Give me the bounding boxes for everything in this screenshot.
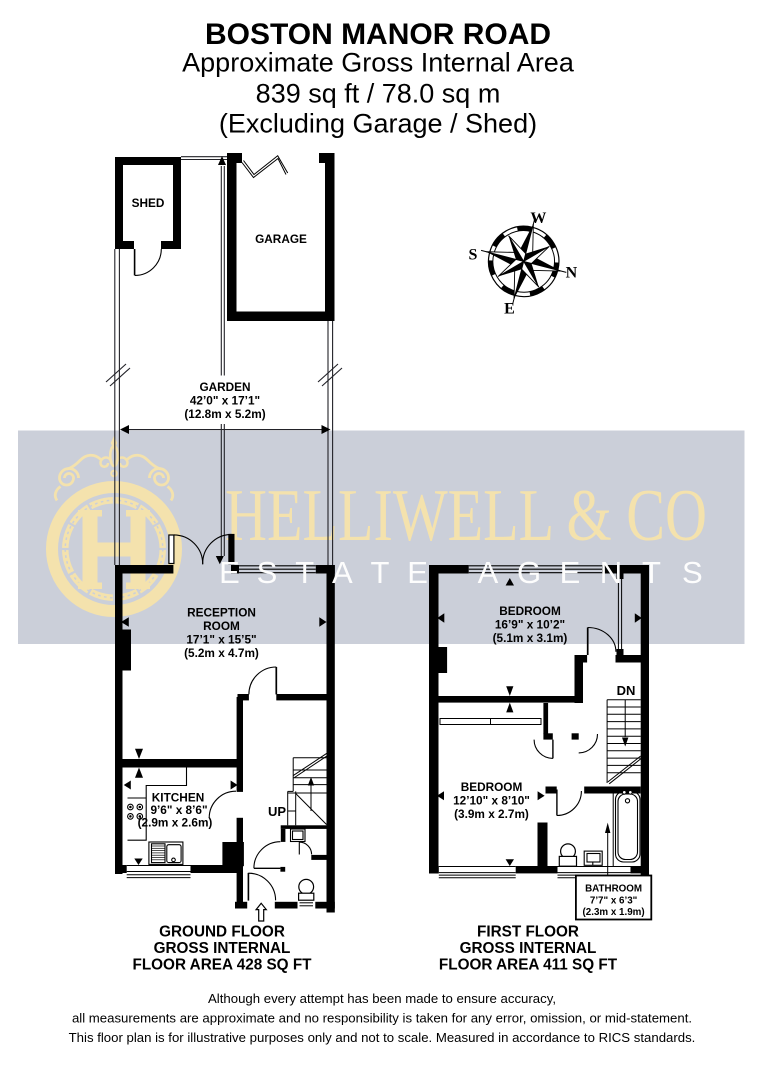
svg-text:N: N bbox=[566, 265, 578, 282]
svg-text:W: W bbox=[530, 210, 546, 227]
svg-text:GROSS INTERNAL: GROSS INTERNAL bbox=[460, 940, 597, 957]
svg-text:BOSTON MANOR ROAD: BOSTON MANOR ROAD bbox=[205, 18, 551, 51]
svg-text:ROOM: ROOM bbox=[203, 619, 240, 633]
svg-text:G: G bbox=[517, 555, 541, 590]
svg-text:(12.8m x 5.2m): (12.8m x 5.2m) bbox=[184, 407, 265, 421]
svg-text:FIRST FLOOR: FIRST FLOOR bbox=[477, 924, 579, 941]
svg-text:16’9" x 10’2": 16’9" x 10’2" bbox=[495, 618, 565, 632]
svg-text:S: S bbox=[682, 555, 703, 590]
svg-text:(5.2m x 4.7m): (5.2m x 4.7m) bbox=[184, 646, 259, 660]
svg-text:E: E bbox=[504, 301, 515, 318]
svg-text:BEDROOM: BEDROOM bbox=[499, 604, 561, 618]
svg-text:GROUND FLOOR: GROUND FLOOR bbox=[159, 924, 285, 941]
svg-text:FLOOR AREA 428 SQ FT: FLOOR AREA 428 SQ FT bbox=[132, 957, 312, 974]
svg-text:GARAGE: GARAGE bbox=[255, 232, 307, 246]
svg-text:7’7" x 6’3": 7’7" x 6’3" bbox=[590, 895, 637, 906]
svg-text:FLOOR AREA 411 SQ FT: FLOOR AREA 411 SQ FT bbox=[439, 957, 618, 974]
svg-text:E: E bbox=[219, 555, 240, 590]
svg-text:E: E bbox=[560, 555, 581, 590]
svg-text:S: S bbox=[469, 246, 478, 263]
svg-text:RECEPTION: RECEPTION bbox=[187, 606, 256, 620]
svg-text:42’0" x 17’1": 42’0" x 17’1" bbox=[190, 394, 260, 408]
svg-text:UP: UP bbox=[268, 804, 286, 819]
svg-text:839 sq ft / 78.0 sq m: 839 sq ft / 78.0 sq m bbox=[256, 79, 501, 109]
svg-text:(2.3m x 1.9m): (2.3m x 1.9m) bbox=[583, 907, 645, 918]
svg-text:Although every attempt has bee: Although every attempt has been made to … bbox=[208, 991, 556, 1006]
svg-text:N: N bbox=[600, 555, 622, 590]
svg-text:BEDROOM: BEDROOM bbox=[461, 780, 523, 794]
svg-text:T: T bbox=[642, 555, 661, 590]
svg-text:HELLIWELL & CO: HELLIWELL & CO bbox=[225, 475, 707, 557]
svg-text:DN: DN bbox=[617, 683, 636, 698]
svg-text:T: T bbox=[295, 555, 314, 590]
svg-text:(5.1m x 3.1m): (5.1m x 3.1m) bbox=[493, 631, 568, 645]
svg-text:12’10" x 8’10": 12’10" x 8’10" bbox=[453, 794, 530, 808]
svg-text:(Excluding Garage / Shed): (Excluding Garage / Shed) bbox=[219, 109, 537, 139]
svg-text:Approximate Gross Internal Are: Approximate Gross Internal Area bbox=[182, 48, 575, 78]
svg-text:SHED: SHED bbox=[132, 196, 165, 210]
svg-text:GROSS INTERNAL: GROSS INTERNAL bbox=[154, 940, 291, 957]
svg-text:all measurements are approxima: all measurements are approximate and no … bbox=[72, 1011, 692, 1026]
svg-text:17’1" x 15’5": 17’1" x 15’5" bbox=[186, 633, 256, 647]
svg-text:T: T bbox=[371, 555, 390, 590]
svg-text:BATHROOM: BATHROOM bbox=[585, 884, 642, 895]
svg-text:(3.9m x 2.7m): (3.9m x 2.7m) bbox=[454, 807, 529, 821]
svg-text:This floor plan is for illustr: This floor plan is for illustrative purp… bbox=[69, 1030, 696, 1045]
svg-text:E: E bbox=[407, 555, 428, 590]
svg-text:GARDEN: GARDEN bbox=[199, 380, 250, 394]
svg-text:A: A bbox=[478, 555, 499, 590]
svg-text:A: A bbox=[332, 555, 353, 590]
svg-text:S: S bbox=[257, 555, 278, 590]
svg-text:(2.9m x 2.6m): (2.9m x 2.6m) bbox=[138, 816, 213, 830]
